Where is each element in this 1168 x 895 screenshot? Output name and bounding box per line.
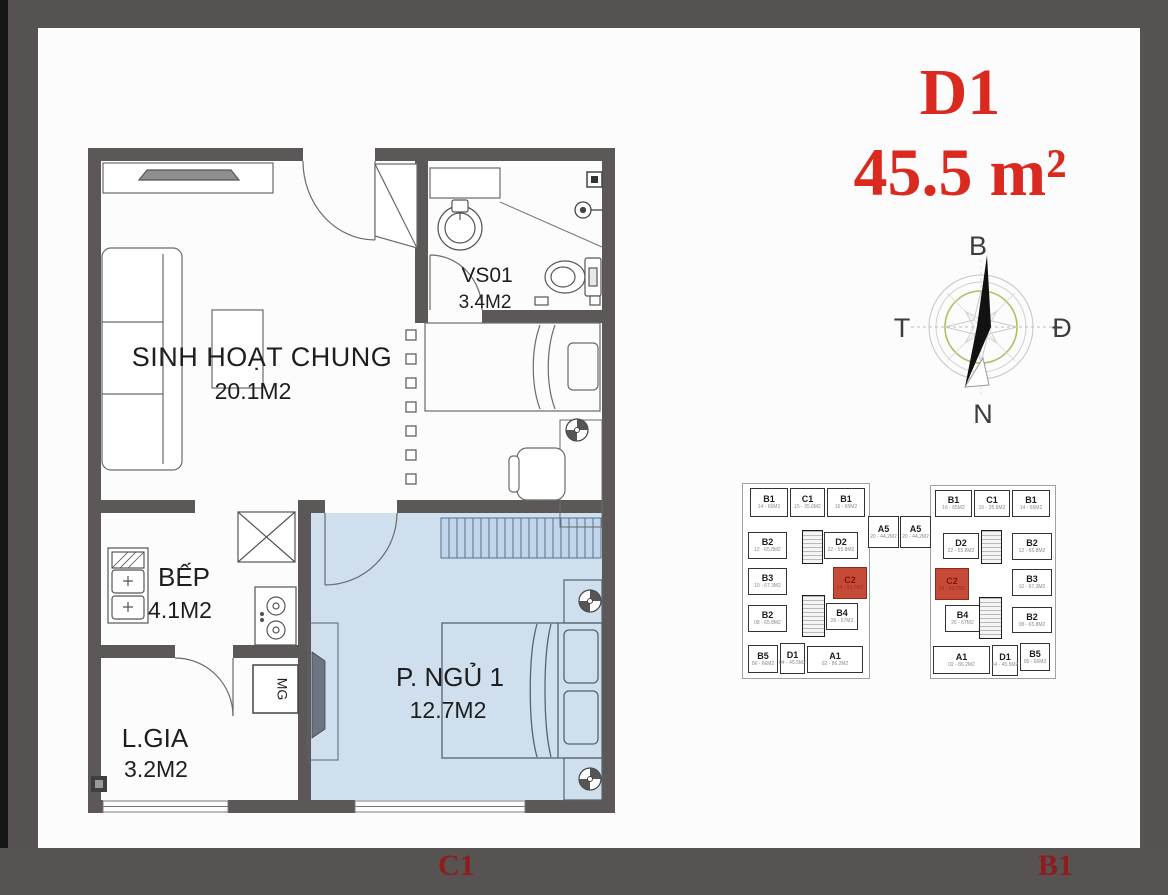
shower-head-icon: [575, 202, 602, 218]
keyplan-unit-c1: C115 - 35.6M2: [790, 488, 825, 517]
stove: [255, 587, 296, 645]
keyplan-unit-label: B1: [840, 495, 852, 504]
room-label-living: SINH HOẠT CHUNG: [132, 342, 393, 372]
keyplan-unit-label: C1: [986, 496, 998, 505]
room-label-bedroom: P. NGỦ 1: [396, 661, 504, 692]
room-area-bathroom: 3.4M2: [459, 292, 512, 313]
room-label-bathroom: VS01: [461, 264, 512, 287]
room-label-kitchen: BẾP: [158, 562, 210, 592]
keyplan-unit-b1: B114 - 65M2: [1012, 490, 1050, 517]
keyplan-unit-area: 16 - 65M2: [942, 506, 965, 511]
keyplan-unit-label: A1: [829, 652, 841, 661]
keyplan-unit-d2: D222 - 55.8M2: [824, 532, 858, 559]
keyplan-core: [981, 530, 1002, 564]
floorplan-sheet: MG: [38, 28, 1140, 848]
keyplan-unit-area: 24 - 53.7M2: [837, 586, 864, 591]
compass: B T Đ N: [886, 225, 1078, 435]
keyplan-unit-area: 22 - 55.8M2: [948, 549, 975, 554]
keyplan-unit-label: B1: [948, 496, 960, 505]
keyplan-unit-area: 12 - 65.8M2: [754, 548, 781, 553]
compass-east-label: Đ: [1052, 313, 1072, 343]
washing-machine-label: MG: [274, 678, 290, 701]
keyplan-unit-label: C1: [802, 495, 814, 504]
daybed: [425, 323, 600, 411]
keyplan-unit-b3: B310 - 67.3M2: [1012, 569, 1052, 596]
keyplan-unit-label: C2: [946, 577, 958, 586]
keyplan-unit-area: 15 - 35.6M2: [794, 505, 821, 510]
bathroom-sink: [438, 200, 482, 250]
keyplan-unit-d2: D222 - 55.8M2: [943, 533, 979, 559]
keyplan-unit-area: 12 - 65.8M2: [1019, 549, 1046, 554]
floorplan-drawing: MG: [85, 140, 618, 820]
compass-south-label: N: [973, 399, 993, 429]
keyplan-unit-area: 06 - 66M2: [752, 662, 775, 667]
keyplan-unit-area: 16 - 65M2: [835, 505, 858, 510]
toilet: [535, 258, 601, 305]
kitchen-sink: [108, 548, 148, 623]
wardrobe: [441, 518, 601, 558]
keyplan-unit-label: B1: [1025, 496, 1037, 505]
footer-band: C1 B1: [0, 848, 1168, 895]
keyplan-unit-c1: C115 - 35.6M2: [974, 490, 1010, 517]
keyplan-unit-b5: B506 - 66M2: [748, 645, 778, 673]
tv-cabinet: [103, 163, 273, 193]
keyplan-unit-label: B2: [762, 611, 774, 620]
keyplan-unit-c2-highlighted: C224 - 53.7M2: [833, 567, 867, 599]
compass-north-label: B: [969, 231, 987, 261]
room-area-kitchen: 4.1M2: [148, 597, 212, 623]
keyplan-unit-label: B4: [957, 611, 969, 620]
room-area-living: 20.1M2: [215, 378, 292, 404]
keyplan-unit-area: 06 - 66M2: [1024, 660, 1047, 665]
keyplan-unit-label: A5: [878, 525, 890, 534]
keyplan-unit-label: B1: [763, 495, 775, 504]
left-edge-strip: [0, 0, 8, 895]
keyplan-core: [802, 530, 823, 564]
desk-chair: [509, 448, 565, 500]
keyplan-unit-area: 20 - 44.2M2: [902, 535, 929, 540]
keyplan-unit-b2: B208 - 65.8M2: [748, 605, 787, 632]
ceiling-fan-icon: [579, 590, 601, 612]
keyplan-unit-d1: D104 - 45.5M2: [992, 645, 1018, 676]
keyplan-unit-label: A5: [910, 525, 922, 534]
keyplan: B114 - 65M2C115 - 35.6M2B116 - 65M2B212 …: [738, 483, 1073, 688]
keyplan-unit-label: C2: [844, 576, 856, 585]
keyplan-unit-area: 14 - 65M2: [758, 505, 781, 510]
unit-area: 45.5 m²: [780, 137, 1140, 208]
floorplan: MG: [85, 140, 618, 820]
keyplan-unit-area: 04 - 45.5M2: [779, 661, 806, 666]
keyplan-unit-b2: B212 - 65.8M2: [748, 532, 787, 559]
keyplan-unit-area: 10 - 67.3M2: [1019, 585, 1046, 590]
room-area-loggia: 3.2M2: [124, 756, 188, 782]
keyplan-unit-a1: A102 - 86.2M2: [807, 646, 863, 673]
room-label-loggia: L.GIA: [122, 723, 189, 753]
keyplan-unit-area: 04 - 45.5M2: [992, 663, 1019, 668]
keyplan-unit-label: B4: [836, 609, 848, 618]
keyplan-unit-a5: A520 - 44.2M2: [868, 516, 899, 548]
compass-west-label: T: [894, 313, 911, 343]
compass-rose: B T Đ N: [886, 225, 1078, 435]
keyplan-unit-a5: A520 - 44.2M2: [900, 516, 931, 548]
keyplan-unit-label: B2: [762, 538, 774, 547]
ceiling-fan-icon: [566, 419, 588, 441]
unit-name: D1: [780, 58, 1140, 127]
room-area-bedroom: 12.7M2: [410, 697, 487, 723]
keyplan-unit-label: B2: [1026, 613, 1038, 622]
fridge-space: [238, 512, 295, 562]
keyplan-unit-b1: B116 - 65M2: [827, 488, 865, 517]
keyplan-unit-area: 14 - 65M2: [1020, 506, 1043, 511]
adjacent-plan-label-c1: C1: [438, 849, 475, 883]
ceiling-fan-icon: [579, 768, 601, 790]
keyplan-unit-area: 08 - 65.8M2: [1019, 623, 1046, 628]
keyplan-unit-d1: D104 - 45.5M2: [780, 643, 805, 674]
keyplan-unit-b4: B426 - 67M2: [945, 605, 980, 632]
keyplan-unit-label: D2: [835, 538, 847, 547]
keyplan-unit-area: 02 - 86.2M2: [822, 662, 849, 667]
keyplan-unit-label: D1: [787, 651, 799, 660]
floor-drain-icon: [587, 172, 602, 187]
bathroom-shelf: [430, 168, 500, 198]
keyplan-unit-b5: B506 - 66M2: [1020, 643, 1050, 671]
keyplan-unit-area: 10 - 67.3M2: [754, 584, 781, 589]
adjacent-plan-label-b1: B1: [1038, 849, 1073, 883]
keyplan-unit-area: 20 - 44.2M2: [870, 535, 897, 540]
keyplan-core: [802, 595, 825, 637]
keyplan-unit-area: 24 - 53.7M2: [939, 587, 966, 592]
keyplan-unit-label: B5: [757, 652, 769, 661]
keyplan-unit-area: 15 - 35.6M2: [979, 506, 1006, 511]
entry-closet: [375, 164, 417, 248]
keyplan-unit-b2: B208 - 65.8M2: [1012, 607, 1052, 633]
page: MG: [0, 0, 1168, 895]
keyplan-unit-label: D1: [999, 653, 1011, 662]
keyplan-unit-c2-highlighted: C224 - 53.7M2: [935, 568, 969, 600]
keyplan-unit-label: D2: [955, 539, 967, 548]
loggia-drain-icon: [91, 776, 107, 792]
keyplan-unit-label: B3: [762, 574, 774, 583]
keyplan-core: [979, 597, 1002, 639]
keyplan-unit-area: 26 - 67M2: [831, 619, 854, 624]
keyplan-unit-a1: A102 - 86.2M2: [933, 646, 990, 674]
title-block: D1 45.5 m²: [780, 58, 1140, 209]
keyplan-unit-label: B5: [1029, 650, 1041, 659]
keyplan-unit-b2: B212 - 65.8M2: [1012, 533, 1052, 560]
keyplan-unit-area: 02 - 86.2M2: [948, 663, 975, 668]
keyplan-unit-b4: B426 - 67M2: [826, 603, 858, 630]
keyplan-unit-b3: B310 - 67.3M2: [748, 568, 787, 595]
keyplan-unit-label: B2: [1026, 539, 1038, 548]
shelf-squares: [406, 330, 416, 484]
washing-machine: MG: [253, 665, 298, 713]
keyplan-unit-area: 22 - 55.8M2: [828, 548, 855, 553]
keyplan-unit-area: 08 - 65.8M2: [754, 621, 781, 626]
keyplan-unit-label: B3: [1026, 575, 1038, 584]
keyplan-unit-b1: B116 - 65M2: [935, 490, 972, 517]
keyplan-unit-area: 26 - 67M2: [951, 621, 974, 626]
keyplan-unit-b1: B114 - 65M2: [750, 488, 788, 517]
keyplan-unit-label: A1: [956, 653, 968, 662]
